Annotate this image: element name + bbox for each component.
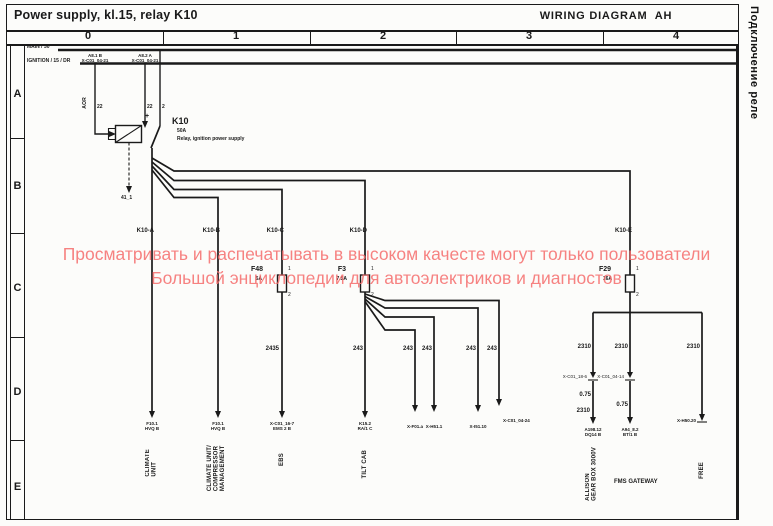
wiring-diagram-page: Power supply, kl.15, relay K10 WIRING DI… [0,0,773,526]
branch-label-k10c: K10-C [267,228,284,235]
column-label-4: 4 [673,30,679,42]
fuse-f29-rating: 16A [603,277,612,283]
diagram-title: WIRING DIAGRAM AH [540,10,673,22]
row-divider [10,233,25,234]
column-label-2: 2 [380,30,386,42]
top-connector-left-label: A8.1 B X-C01_04-21 [82,53,109,63]
branch-label-k10b: K10-B [203,228,220,235]
fuse-f3-rating: 7.5A [336,277,347,283]
wire-number-2310: 2310 [687,344,700,351]
relay-description: Relay, ignition power supply [177,137,244,143]
endpoint-label-e1: A198.12 DQ14 B [584,427,601,437]
column-row-underline [6,44,739,46]
wire-size-075-mid: 0.75 [616,402,628,409]
consumer-ebs: EBS [279,453,286,466]
column-divider [310,30,311,44]
row-divider [10,440,25,441]
top-connector-right-label: A8.2 A X-C01_04-21 [132,53,159,63]
row-strip-left [10,44,11,519]
bus-main-label: MAIN / 30 [27,45,50,51]
wire-number-22-right: 22 [147,105,153,111]
outer-border [6,4,739,520]
fuse-f3-id: F3 [338,266,346,273]
wire-number-2310: 2310 [615,344,628,351]
column-label-3: 3 [526,30,532,42]
column-divider [163,30,164,44]
row-label-c: C [14,282,22,294]
junction-label-xc01-04-14: X-C01_04-14 [597,374,624,379]
column-label-1: 1 [233,30,239,42]
wire-number-2310: 2310 [578,344,591,351]
branch-label-k10a: K10-A [137,228,154,235]
consumer-compressor-management: CLIMATE UNIT/ COMPRESSOR MANAGEMENT [207,445,227,491]
consumer-fms-gateway: FMS GATEWAY [614,479,658,486]
wire-number-243: 243 [466,346,476,353]
consumer-climate-unit: CLIMATE UNIT [145,449,158,477]
row-strip-right [24,44,25,519]
relay-rating: 50A [177,129,186,135]
row-label-b: B [14,180,22,192]
relay-id: K10 [172,117,189,126]
wire-number-243: 243 [353,346,363,353]
endpoint-label-d: K15.2 RA/1 C [358,421,373,431]
title-underline [6,30,739,32]
fuse-f29-id: F29 [599,266,611,273]
row-label-a: A [14,88,22,100]
endpoint-label-c: X-C01_16-7 EMS 2 B [270,421,294,431]
wire-size-075-left: 0.75 [579,392,591,399]
fuse-f48-pin1: 1 [288,267,291,273]
endpoint-label-d3: X-I51.10 [469,424,486,429]
junction-label-xc01-18-6: X-C01_18-6 [563,374,587,379]
endpoint-label-e2: A94_8.2 BT/1 B [621,427,638,437]
wire-number-2435: 2435 [266,346,279,353]
fuse-f3-pin2: 2 [371,293,374,299]
fuse-f29-pin2: 2 [636,293,639,299]
bus-ignition-label: IGNITION / 15 / DR [27,59,70,65]
endpoint-label-d2: X-H51.1 [426,424,443,429]
endpoint-label-a: F10.1 HVQ B [145,421,159,431]
endpoint-label-e3: X-H50.20 [677,418,696,423]
row-divider [10,337,25,338]
ground-wire-label: 41_1 [121,196,132,202]
branch-label-k10e: K10-E [615,228,632,235]
endpoint-label-d4: X-C01_04-24 [503,418,530,423]
consumer-free: FREE [699,462,706,479]
row-label-d: D [14,386,22,398]
fuse-f48-id: F48 [251,266,263,273]
consumer-tilt-cab: TILT CAB [362,450,369,478]
relay-plus-sign: + [145,113,149,120]
page-title: Power supply, kl.15, relay K10 [14,9,198,22]
fuse-f48-rating: 5A [256,277,262,283]
wire-number-2-main: 2 [162,105,165,111]
fuse-f48-pin2: 2 [288,293,291,299]
column-label-0: 0 [85,30,91,42]
consumer-allison-gearbox: ALLISON GEAR BOX 3000V [585,447,598,501]
row-divider [10,138,25,139]
inner-right-border [736,44,738,519]
wire-name-aor: AOR [83,97,89,109]
wire-number-243: 243 [422,346,432,353]
wire-number-243: 243 [487,346,497,353]
row-label-e: E [14,481,21,493]
wire-number-243: 243 [403,346,413,353]
wire-number-2310-lower: 2310 [577,408,590,415]
endpoint-label-b: F10.1 HVQ B [211,421,225,431]
column-divider [603,30,604,44]
side-note-label: Подключение реле [748,6,760,120]
fuse-f3-pin1: 1 [371,267,374,273]
wire-number-22-left: 22 [97,105,103,111]
branch-label-k10d: K10-D [350,228,367,235]
fuse-f29-pin1: 1 [636,267,639,273]
endpoint-label-d1: X-F01.a [407,424,423,429]
column-divider [456,30,457,44]
